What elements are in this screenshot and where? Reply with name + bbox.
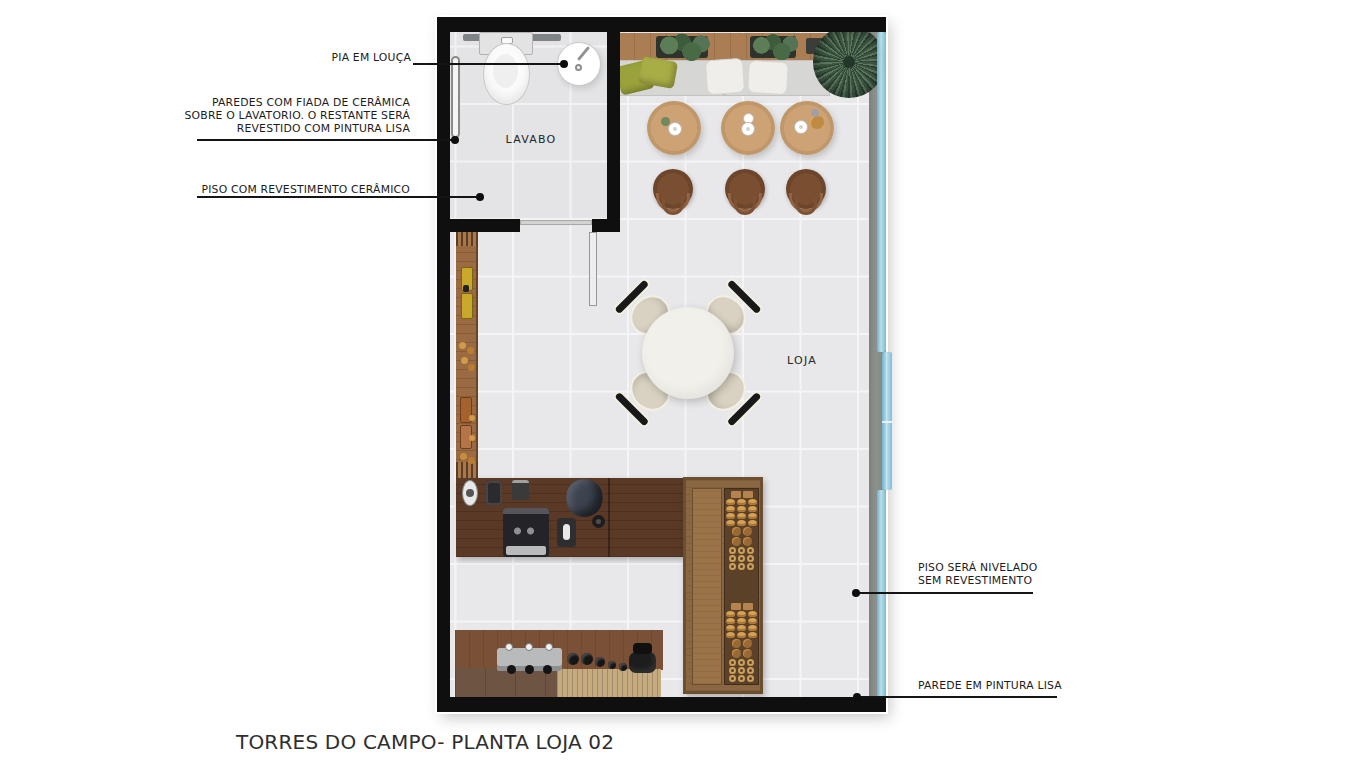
cafe-table-2 bbox=[721, 101, 775, 155]
leader-line-piso-ceramico bbox=[197, 196, 480, 198]
white-pillow-2 bbox=[747, 60, 789, 95]
leader-line-paredes bbox=[197, 139, 455, 141]
shelf-item bbox=[468, 457, 475, 464]
lavabo-wall-corner bbox=[592, 219, 620, 232]
grab-bar bbox=[451, 56, 460, 138]
office-chair bbox=[629, 652, 656, 673]
sliding-glass-door bbox=[882, 352, 892, 490]
shelf-item bbox=[459, 342, 466, 349]
shelf-slats-top bbox=[456, 230, 478, 246]
leader-dot-paredes bbox=[451, 136, 459, 144]
table-cup bbox=[741, 122, 755, 136]
espresso-machine bbox=[497, 648, 562, 671]
shelf-item bbox=[460, 453, 467, 460]
lavabo-door-threshold bbox=[520, 220, 592, 225]
coffee-scale bbox=[557, 518, 576, 547]
toilet-bowl bbox=[483, 43, 530, 105]
coffee-machine bbox=[503, 508, 549, 557]
table-cup bbox=[668, 122, 682, 136]
annotation-line-1: PAREDES COM FIADA DE CERÂMICA bbox=[185, 96, 410, 109]
leader-line-piso-nivelado bbox=[856, 592, 1033, 594]
leader-dot-parede-lisa bbox=[853, 693, 861, 701]
floor-plan: LAVABO bbox=[437, 17, 886, 712]
annotation-line-2: SOBRE O LAVATORIO. O RESTANTE SERÁ bbox=[185, 109, 410, 122]
shelf-item bbox=[467, 347, 474, 354]
leader-dot-piso-nivelado bbox=[852, 589, 860, 597]
sink-drain bbox=[575, 64, 582, 71]
shelf-item bbox=[461, 357, 468, 364]
annotation-piso-ceramico: PISO COM REVESTIMENTO CERÂMICO bbox=[201, 183, 410, 196]
dark-cup bbox=[592, 515, 605, 528]
lavabo-door-leaf bbox=[589, 232, 597, 306]
shelf-slats-bottom bbox=[456, 462, 478, 478]
leader-line-pia bbox=[413, 63, 564, 65]
yellow-bottles bbox=[461, 293, 473, 319]
wall-top bbox=[437, 17, 886, 32]
room-label-loja: LOJA bbox=[772, 354, 832, 367]
room-label-lavabo: LAVABO bbox=[489, 133, 573, 146]
annotation-line-2: SEM REVESTIMENTO bbox=[918, 574, 1038, 587]
planter-box-2 bbox=[750, 36, 796, 58]
annotation-paredes-ceramica: PAREDES COM FIADA DE CERÂMICA SOBRE O LA… bbox=[185, 96, 410, 135]
pastry-shelves bbox=[724, 488, 759, 685]
leader-line-parede-lisa bbox=[857, 696, 1057, 698]
portafilter bbox=[507, 665, 516, 674]
floor-plan-canvas: LAVABO bbox=[0, 0, 1363, 767]
shelf-item bbox=[469, 435, 475, 441]
portafilter bbox=[525, 665, 534, 674]
kettle bbox=[462, 480, 478, 506]
lavabo-wall-right bbox=[607, 17, 620, 232]
shelf-item bbox=[469, 415, 475, 421]
bar-front-dark-panel bbox=[455, 668, 558, 697]
stool-3 bbox=[786, 169, 826, 209]
table-cup bbox=[794, 120, 808, 134]
plan-title: TORRES DO CAMPO- PLANTA LOJA 02 bbox=[236, 730, 614, 754]
shelf-jar bbox=[463, 285, 469, 292]
machine-knob bbox=[545, 643, 553, 651]
annotation-line-3: REVESTIDO COM PINTURA LISA bbox=[185, 122, 410, 135]
bar-front-slat-panel bbox=[557, 669, 661, 697]
wall-left bbox=[437, 17, 450, 712]
office-chair-back bbox=[633, 643, 652, 654]
shelf-item bbox=[468, 364, 475, 371]
wall-bottom bbox=[437, 697, 886, 712]
cafe-table-1 bbox=[647, 101, 701, 155]
sink-faucet bbox=[577, 46, 590, 61]
annotation-line-1: PISO SERÁ NIVELADO bbox=[918, 561, 1038, 574]
coffee-grinder bbox=[486, 481, 502, 505]
annotation-piso-nivelado: PISO SERÁ NIVELADO SEM REVESTIMENTO bbox=[918, 561, 1038, 587]
leader-dot-piso-ceramico bbox=[476, 193, 484, 201]
machine-knob bbox=[525, 643, 533, 651]
bar-cup bbox=[567, 653, 579, 665]
toaster bbox=[512, 480, 529, 500]
bar-cup bbox=[608, 661, 616, 669]
stool-2 bbox=[725, 169, 765, 209]
white-pillow-1 bbox=[705, 58, 745, 96]
portafilter bbox=[543, 665, 552, 674]
cafe-table-3 bbox=[780, 101, 834, 155]
corner-plant bbox=[813, 26, 885, 98]
stool-1 bbox=[653, 169, 693, 209]
bar-cup bbox=[619, 663, 627, 671]
lavabo-wall-bottom bbox=[437, 219, 520, 232]
metal-pot bbox=[811, 109, 819, 117]
annotation-pia-em-louca: PIA EM LOUÇA bbox=[332, 51, 411, 64]
dining-table bbox=[642, 307, 734, 399]
bar-cup bbox=[595, 657, 605, 667]
glass-wall-upper bbox=[877, 32, 886, 352]
cabinet-door bbox=[692, 488, 722, 685]
machine-knob bbox=[505, 643, 513, 651]
planter-box-1 bbox=[656, 36, 708, 58]
leader-dot-pia bbox=[560, 60, 568, 68]
annotation-parede-lisa: PAREDE EM PINTURA LISA bbox=[918, 679, 1062, 692]
croissant-basket bbox=[810, 115, 824, 129]
pastry-display-cabinet bbox=[683, 477, 763, 694]
bar-cup bbox=[581, 653, 593, 665]
